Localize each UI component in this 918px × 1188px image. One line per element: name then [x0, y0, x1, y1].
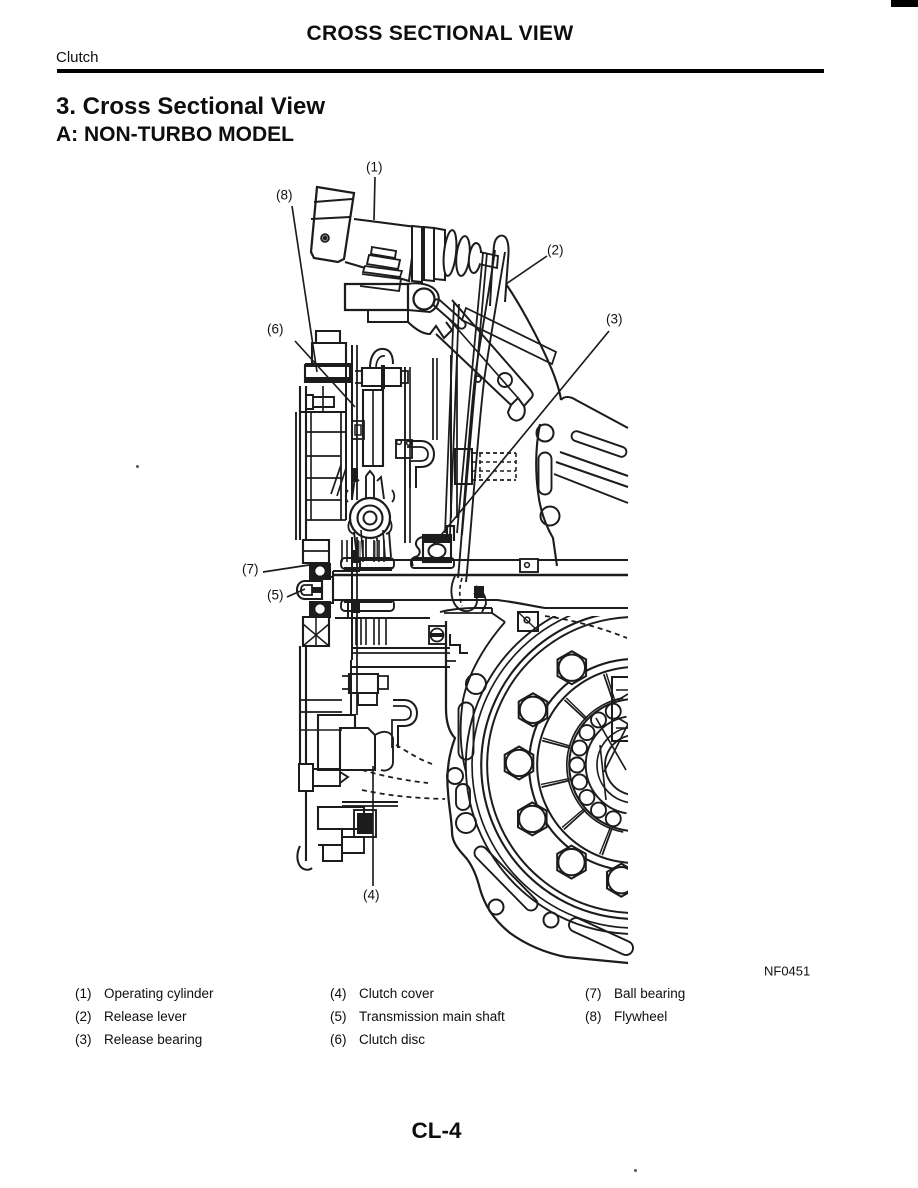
svg-text:(4): (4) — [363, 888, 380, 903]
svg-text:(5): (5) — [267, 588, 284, 603]
svg-text:(3): (3) — [606, 312, 623, 327]
svg-text:(2): (2) — [547, 243, 564, 258]
svg-text:(6): (6) — [267, 322, 284, 337]
svg-text:NF0451: NF0451 — [764, 964, 810, 979]
svg-text:(7): (7) — [242, 562, 259, 577]
svg-text:(8): (8) — [276, 188, 293, 203]
svg-text:(1): (1) — [366, 160, 383, 175]
